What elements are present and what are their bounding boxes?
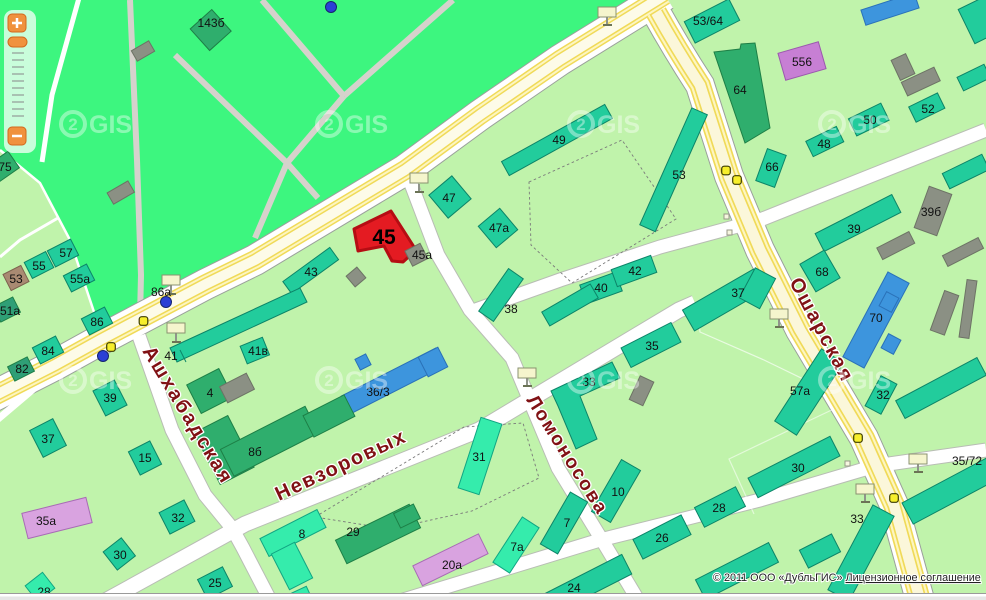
svg-text:35а: 35а	[36, 514, 56, 528]
svg-text:49: 49	[552, 133, 566, 147]
svg-text:GIS: GIS	[848, 367, 891, 395]
svg-text:7: 7	[564, 516, 571, 530]
svg-text:7а: 7а	[510, 540, 524, 554]
svg-text:53: 53	[9, 272, 23, 286]
svg-text:30: 30	[113, 548, 127, 562]
svg-text:GIS: GIS	[597, 367, 640, 395]
svg-text:38: 38	[504, 302, 518, 316]
svg-text:37: 37	[41, 432, 55, 446]
svg-text:47: 47	[442, 191, 456, 205]
svg-text:143б: 143б	[198, 16, 225, 30]
svg-text:2: 2	[68, 371, 77, 390]
svg-text:32: 32	[171, 511, 185, 525]
svg-text:2: 2	[324, 371, 333, 390]
svg-text:55а: 55а	[70, 272, 90, 286]
svg-text:86: 86	[90, 315, 104, 329]
svg-text:47а: 47а	[489, 221, 509, 235]
svg-text:© 2011 ООО «ДубльГИС» Лицензио: © 2011 ООО «ДубльГИС» Лицензионное согла…	[713, 572, 981, 584]
svg-text:68: 68	[815, 265, 829, 279]
svg-text:GIS: GIS	[89, 111, 132, 139]
svg-text:39: 39	[847, 222, 861, 236]
svg-text:45: 45	[372, 226, 396, 249]
svg-text:64: 64	[733, 83, 747, 97]
svg-text:30: 30	[791, 461, 805, 475]
svg-text:20а: 20а	[442, 558, 462, 572]
svg-text:55: 55	[32, 259, 46, 273]
svg-text:2: 2	[827, 371, 836, 390]
svg-text:57: 57	[59, 246, 73, 260]
svg-text:35: 35	[645, 339, 659, 353]
svg-text:556: 556	[792, 55, 812, 69]
svg-text:8: 8	[299, 527, 306, 541]
svg-text:2: 2	[576, 371, 585, 390]
svg-text:31: 31	[472, 450, 486, 464]
svg-text:4: 4	[207, 386, 214, 400]
svg-text:48: 48	[817, 137, 831, 151]
svg-text:2: 2	[827, 115, 836, 134]
svg-text:43: 43	[304, 265, 318, 279]
svg-text:51а: 51а	[0, 304, 20, 318]
svg-text:25: 25	[208, 576, 222, 590]
svg-text:28: 28	[712, 501, 726, 515]
svg-text:82: 82	[15, 362, 29, 376]
svg-text:42: 42	[628, 264, 642, 278]
svg-text:GIS: GIS	[345, 111, 388, 139]
svg-text:70: 70	[869, 311, 883, 325]
svg-text:26: 26	[655, 531, 669, 545]
svg-text:57а: 57а	[790, 384, 810, 398]
svg-text:41в: 41в	[248, 344, 268, 358]
svg-text:2: 2	[324, 115, 333, 134]
svg-text:GIS: GIS	[345, 367, 388, 395]
svg-text:24: 24	[567, 581, 581, 595]
svg-text:52: 52	[921, 102, 935, 116]
svg-text:45а: 45а	[412, 248, 432, 262]
svg-text:8б: 8б	[248, 445, 262, 459]
svg-text:37: 37	[731, 286, 745, 300]
svg-text:15: 15	[138, 451, 152, 465]
svg-text:2: 2	[68, 115, 77, 134]
svg-text:GIS: GIS	[597, 111, 640, 139]
svg-text:66: 66	[765, 160, 779, 174]
svg-text:10: 10	[611, 485, 625, 499]
svg-text:35/72: 35/72	[952, 454, 982, 468]
svg-text:GIS: GIS	[848, 111, 891, 139]
svg-text:53/64: 53/64	[693, 14, 723, 28]
svg-text:40: 40	[594, 281, 608, 295]
svg-text:86а: 86а	[151, 285, 171, 299]
svg-text:29: 29	[346, 525, 360, 539]
svg-text:84: 84	[41, 344, 55, 358]
svg-text:GIS: GIS	[89, 367, 132, 395]
svg-text:53: 53	[672, 168, 686, 182]
svg-text:33: 33	[850, 512, 864, 526]
svg-text:75: 75	[0, 160, 12, 174]
svg-text:39б: 39б	[921, 205, 941, 219]
svg-text:2: 2	[576, 115, 585, 134]
